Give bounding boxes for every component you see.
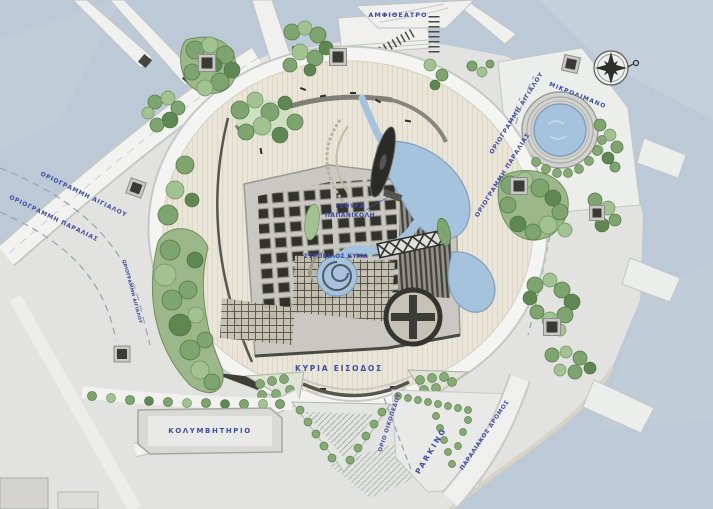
- label-swimming-pool: ΚΟΛΥΜΒΗΤΗΡΙΟ: [168, 427, 252, 435]
- round-basin: [534, 104, 586, 156]
- label-amphitheater: ΑΜΦΙΘΕΑΤΡΟ: [368, 11, 427, 19]
- site-plan: ΑΜΦΙΘΕΑΤΡΟ ΟΡΙΟΓΡΑΜΜΗ ΑΙΓΙΑΛΟΥ ΟΡΙΟΓΡΑΜΜ…: [0, 0, 713, 509]
- label-bridge-line1: ΓΕΦΥΡΑ: [336, 203, 365, 210]
- label-bridge-line2: ΠΑΠΑΝΙΚΟΛΗ: [325, 212, 375, 219]
- circular-deck: [386, 290, 440, 344]
- site-plan-drawing: ΑΜΦΙΘΕΑΤΡΟ ΟΡΙΟΓΡΑΜΜΗ ΑΙΓΙΑΛΟΥ ΟΡΙΟΓΡΑΜΜ…: [0, 0, 713, 509]
- label-main-entrance: ΚΥΡΙΑ ΕΙΣΟΔΟΣ: [295, 364, 383, 373]
- label-vortex-wave: ΣΤΡΟΒΙΛΟΣ ΚΥΜΑ: [304, 253, 368, 260]
